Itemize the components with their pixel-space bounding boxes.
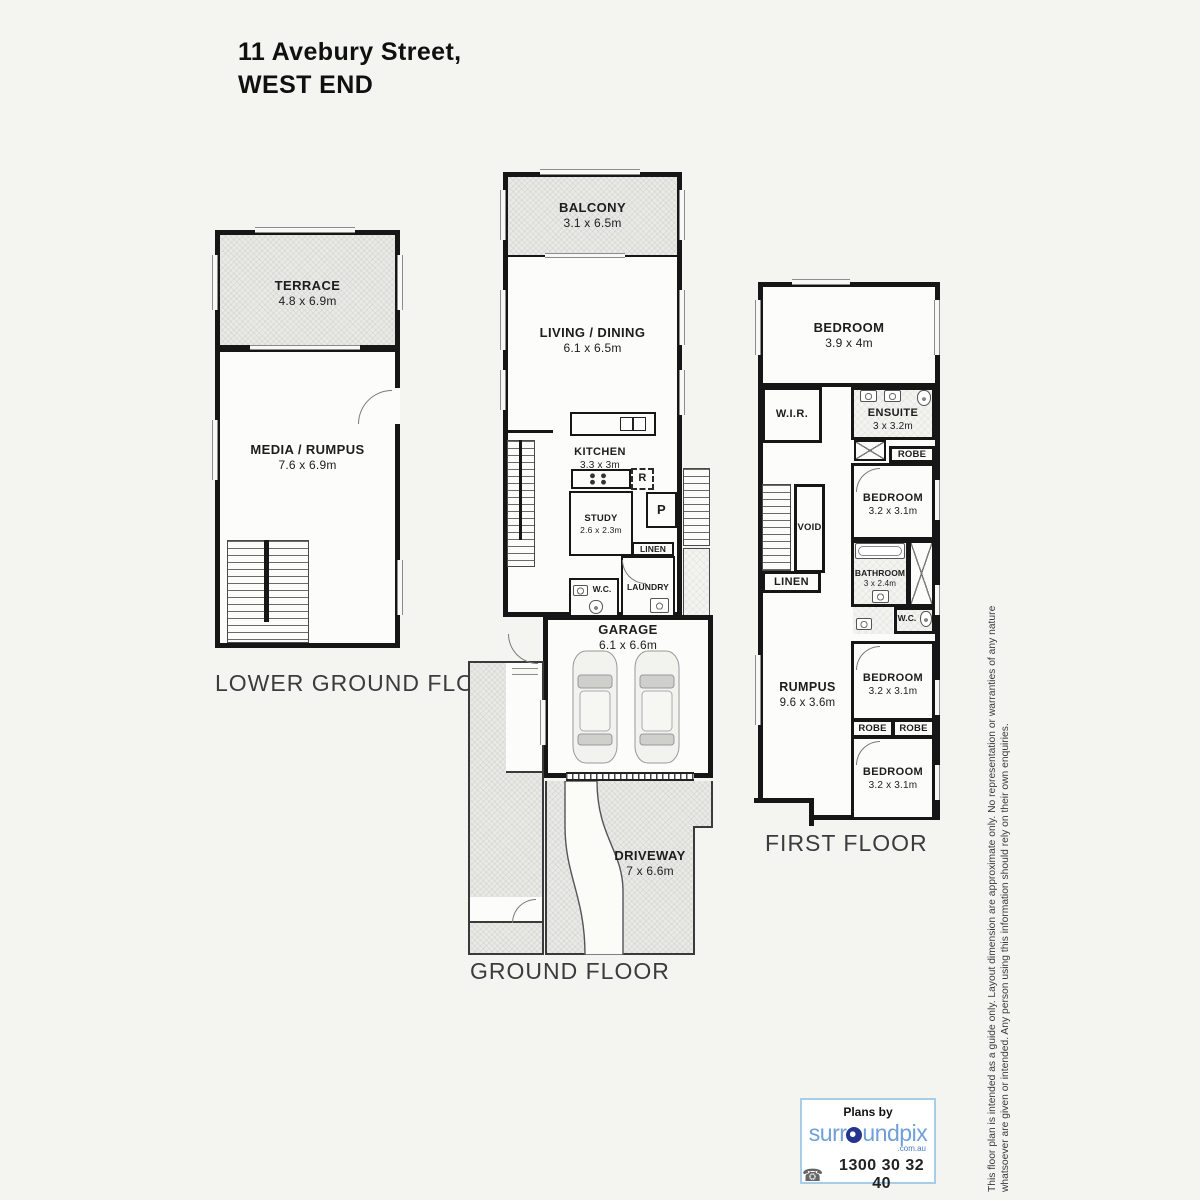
entry-landing: [683, 548, 710, 616]
ground-linen-label: LINEN: [632, 544, 674, 555]
phone-row: ☎ 1300 30 32 40: [802, 1157, 934, 1193]
bedroom1-window-top: [792, 279, 850, 285]
kitchen-wall-stub: [508, 430, 553, 433]
terrace-railing: [255, 227, 355, 233]
balcony-railing: [540, 169, 640, 175]
fridge-label: R: [631, 472, 654, 486]
title-street: 11 Avebury Street,: [238, 36, 462, 69]
ground-floor-label: GROUND FLOOR: [470, 958, 670, 985]
surroundpix-logo: surrundpix: [802, 1121, 934, 1145]
page-title: 11 Avebury Street, WEST END: [238, 36, 462, 101]
bedroom2-label: BEDROOM 3.2 x 3.1m: [851, 492, 935, 518]
bathtub-icon: [855, 543, 905, 559]
disclaimer-text: This floor plan is intended as a guide o…: [986, 552, 1013, 1192]
first-linen-label: LINEN: [762, 576, 821, 590]
rumpus-label: RUMPUS 9.6 x 3.6m: [760, 680, 855, 710]
nook-basin-icon: [856, 618, 872, 630]
balcony-label: BALCONY 3.1 x 6.5m: [508, 200, 677, 231]
ground-stairs-divider: [519, 440, 522, 540]
wc-toilet-icon: [589, 600, 603, 614]
disclaimer-line2: whatsoever are given or intended. Any pe…: [999, 552, 1012, 1192]
garage-window-left: [540, 700, 546, 745]
first-floor-step-notch: [754, 798, 814, 826]
balcony-window-right: [679, 190, 685, 240]
pantry-label: P: [646, 502, 677, 518]
void-label: VOID: [794, 522, 825, 534]
media-rumpus-label: MEDIA / RUMPUS 7.6 x 6.9m: [215, 442, 400, 473]
surroundpix-logo-o-icon: [846, 1127, 862, 1143]
balcony-window-left: [500, 190, 506, 240]
first-floor-label: FIRST FLOOR: [765, 830, 928, 857]
robe2-label: ROBE: [851, 723, 894, 735]
stair-divider-wall: [264, 540, 269, 622]
bathroom-label: BATHROOM 3 x 2.4m: [851, 568, 909, 589]
driveway-notch: [693, 826, 713, 955]
living-dining-label: LIVING / DINING 6.1 x 6.5m: [508, 325, 677, 356]
living-window-left2: [500, 370, 506, 410]
robe3-label: ROBE: [892, 723, 935, 735]
kitchen-sink: [620, 417, 646, 431]
media-door-gap: [394, 388, 400, 424]
garage-door: [566, 772, 694, 781]
phone-number: 1300 30 32 40: [829, 1157, 934, 1193]
study-label: STUDY 2.6 x 2.3m: [569, 513, 633, 536]
entry-walkway: [506, 663, 544, 773]
bedroom4-label: BEDROOM 3.2 x 3.1m: [851, 766, 935, 792]
plans-by-label: Plans by: [802, 1105, 934, 1119]
first-wc-toilet-icon: [920, 611, 932, 627]
driveway-label: DRIVEWAY 7 x 6.6m: [590, 848, 710, 879]
wc-basin-icon: [573, 585, 588, 596]
garage-label: GARAGE 6.1 x 6.6m: [543, 622, 713, 653]
media-window-right: [397, 560, 403, 615]
disclaimer-line1: This floor plan is intended as a guide o…: [986, 552, 999, 1192]
bedroom1-window-left: [755, 300, 761, 355]
living-window-left1: [500, 290, 506, 350]
ensuite-toilet-icon: [917, 390, 931, 406]
bedroom1-label: BEDROOM 3.9 x 4m: [763, 320, 935, 351]
laundry-label: LAUNDRY: [621, 582, 675, 593]
car-icon: [570, 648, 620, 766]
stove-icon: [586, 471, 610, 487]
wir-label: W.I.R.: [762, 408, 822, 422]
title-suburb: WEST END: [238, 69, 462, 102]
front-door-arc: [508, 634, 538, 664]
first-floor-stairs: [762, 484, 791, 571]
floor-plan-page: 11 Avebury Street, WEST END TERRACE 4.8 …: [0, 0, 1200, 1200]
living-slider-door: [545, 253, 625, 258]
shower-icon: [854, 440, 886, 461]
terrace-label: TERRACE 4.8 x 6.9m: [215, 278, 400, 309]
entry-steps: [683, 468, 710, 546]
ground-wc-label: W.C.: [585, 584, 619, 595]
living-window-right2: [679, 370, 685, 415]
ensuite-basin-icon: [860, 390, 877, 402]
phone-icon: ☎: [802, 1167, 823, 1184]
robe1-label: ROBE: [889, 449, 935, 461]
ensuite-basin-icon: [884, 390, 901, 402]
living-window-right1: [679, 290, 685, 345]
surroundpix-branding-box: Plans by surrundpix .com.au ☎ 1300 30 32…: [800, 1098, 936, 1184]
car-icon: [632, 648, 682, 766]
ensuite-label: ENSUITE 3 x 3.2m: [851, 407, 935, 433]
bathroom-closet: [908, 540, 935, 607]
laundry-tub-icon: [650, 598, 669, 613]
bathroom-basin-icon: [872, 590, 889, 603]
media-slider-door: [250, 345, 360, 350]
entry-mat: [512, 668, 538, 675]
bedroom3-label: BEDROOM 3.2 x 3.1m: [851, 672, 935, 698]
first-wc-label: W.C.: [894, 613, 920, 624]
